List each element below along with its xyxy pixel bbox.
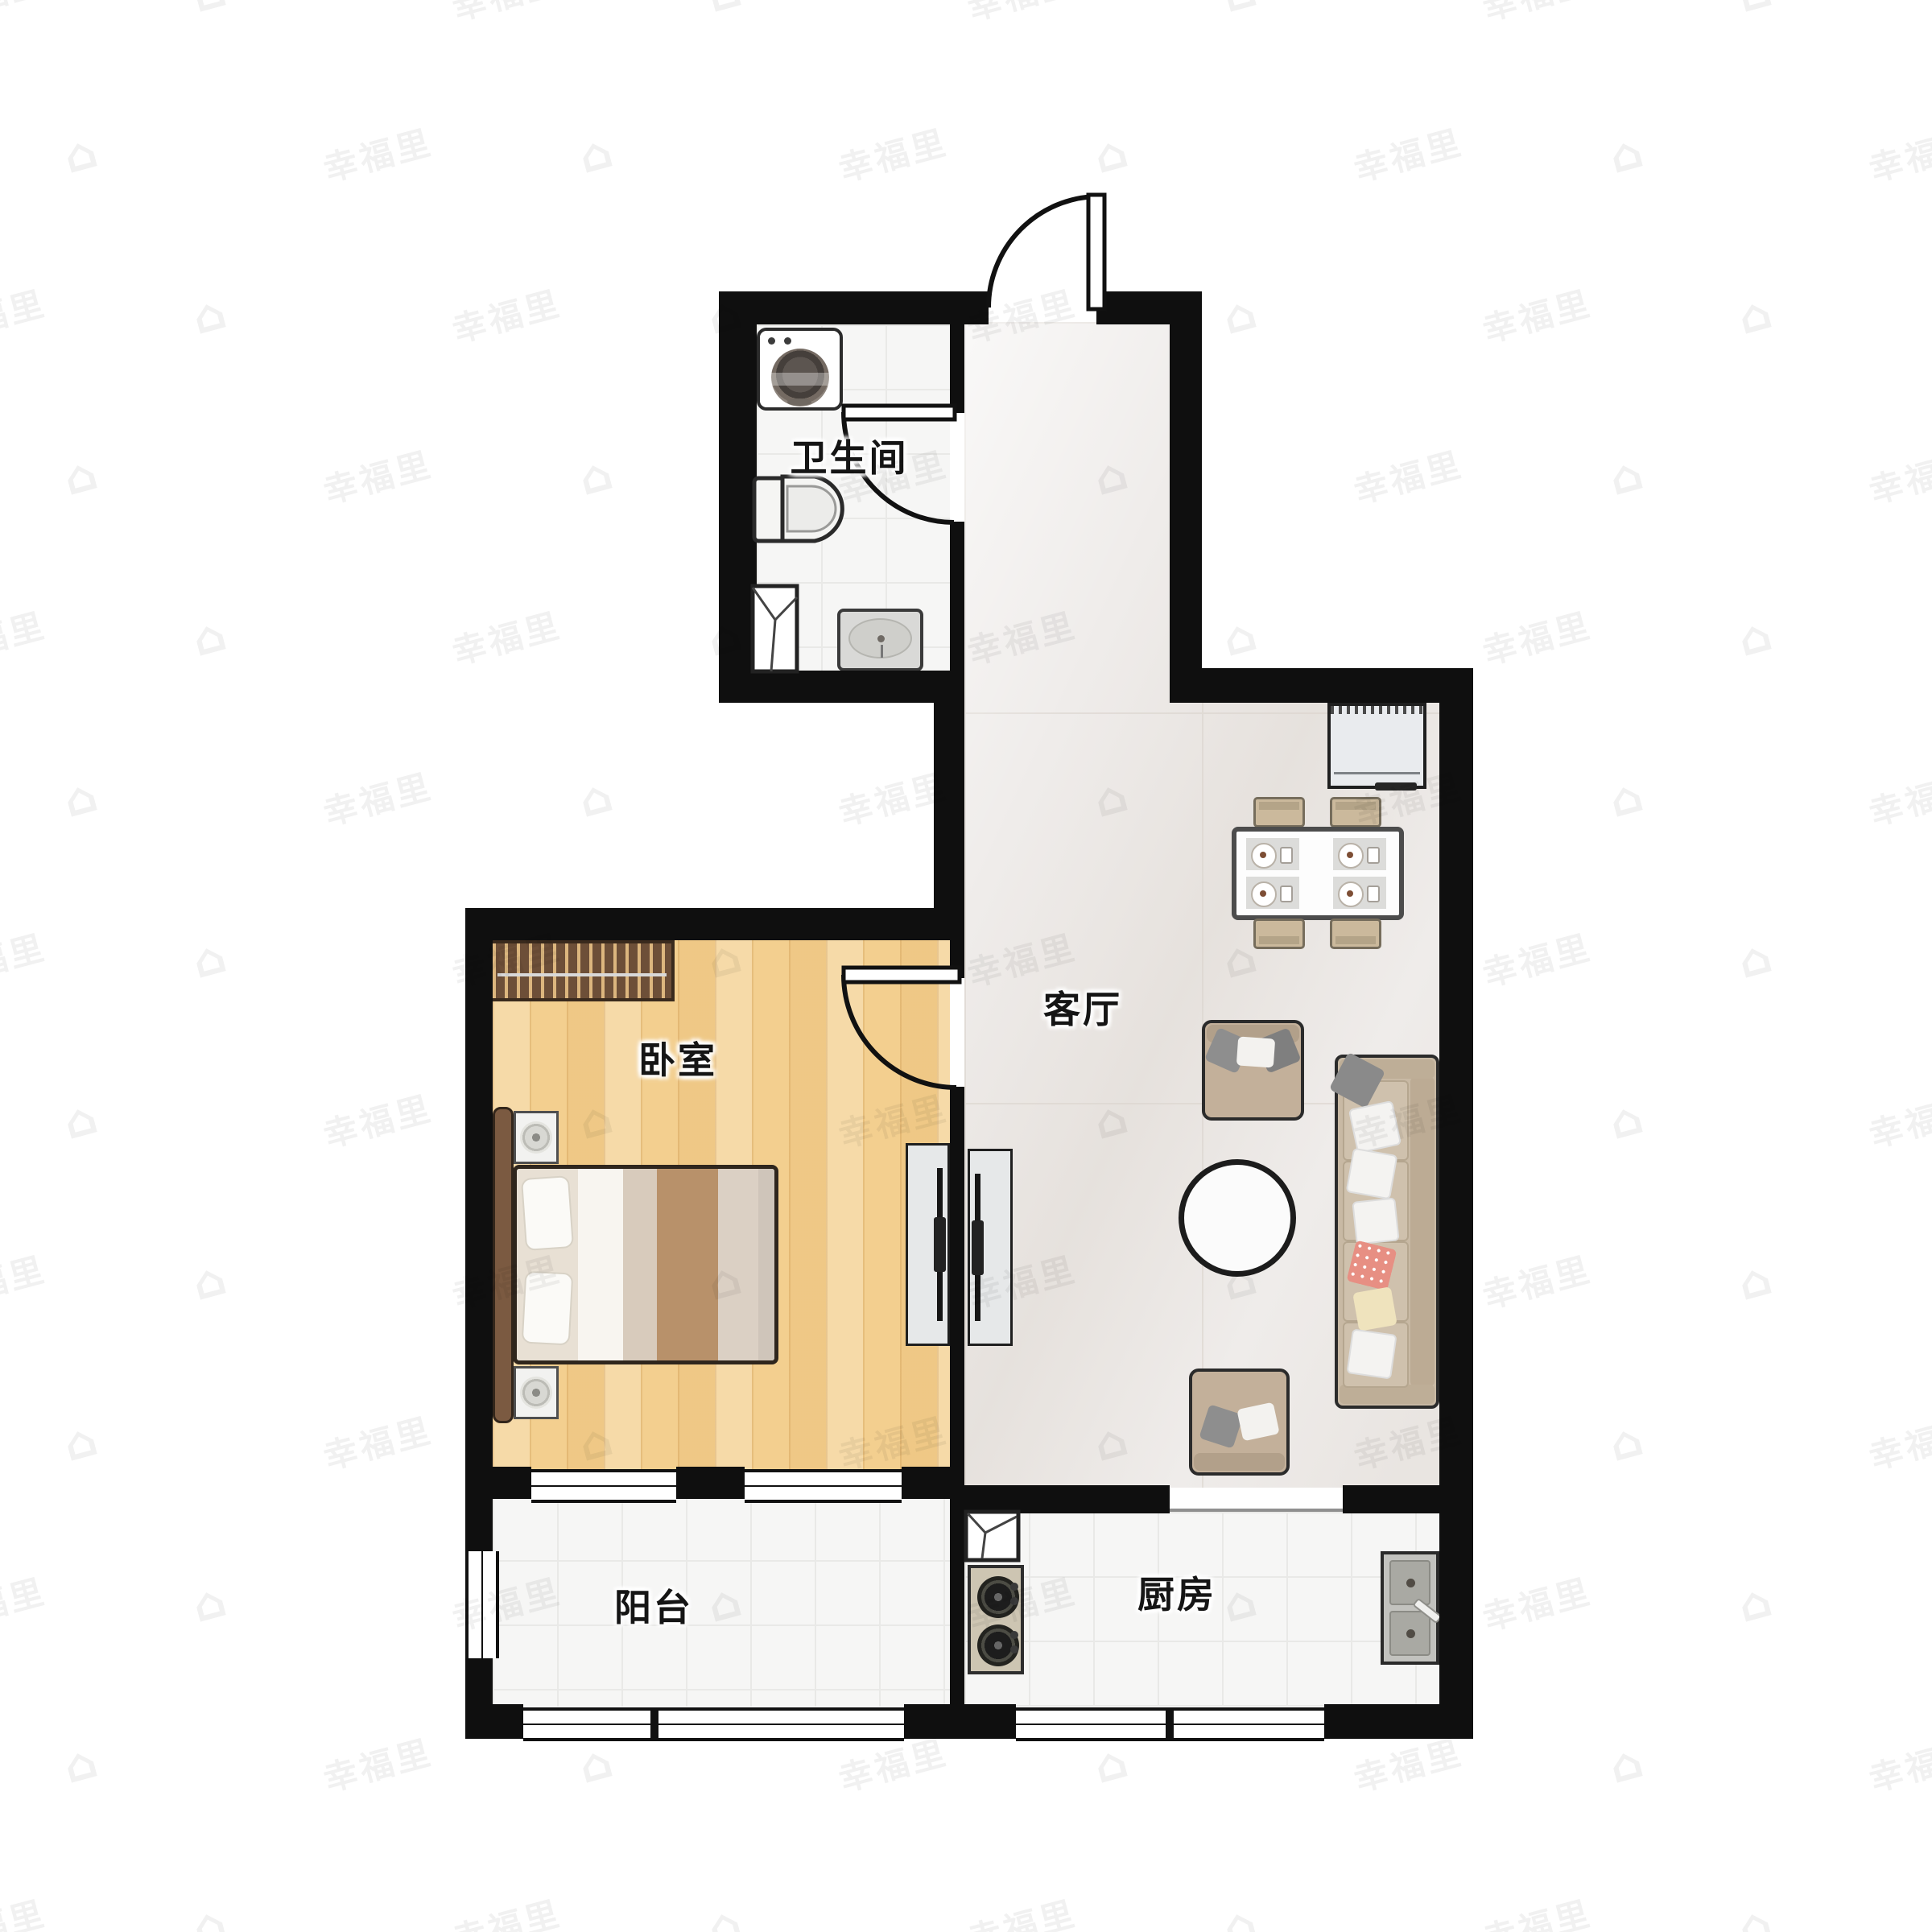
flue-box-icon bbox=[966, 1512, 1018, 1560]
entrance-door-arc bbox=[989, 196, 1096, 308]
room-label-kitchen: 厨房 bbox=[1080, 1566, 1274, 1619]
room-label-bathroom: 卫生间 bbox=[753, 429, 946, 482]
bedroom-door-leaf bbox=[844, 968, 960, 982]
room-label-bedroom: 卧室 bbox=[581, 1031, 774, 1084]
entrance-door-leaf bbox=[1088, 195, 1104, 309]
toilet-icon bbox=[754, 477, 842, 541]
room-label-balcony: 阳台 bbox=[557, 1579, 750, 1632]
bathroom-door-leaf bbox=[844, 406, 955, 419]
room-label-living: 客厅 bbox=[986, 980, 1179, 1034]
shower-corner-icon bbox=[753, 586, 797, 671]
floor-plan-canvas: 卫生间 客厅 卧室 阳台 厨房 幸福里⌂幸福里⌂幸福里⌂幸福里⌂幸福里⌂幸福里⌂… bbox=[0, 0, 1932, 1932]
bedroom-door-arc bbox=[844, 975, 956, 1088]
vector-overlay bbox=[0, 0, 1932, 1932]
